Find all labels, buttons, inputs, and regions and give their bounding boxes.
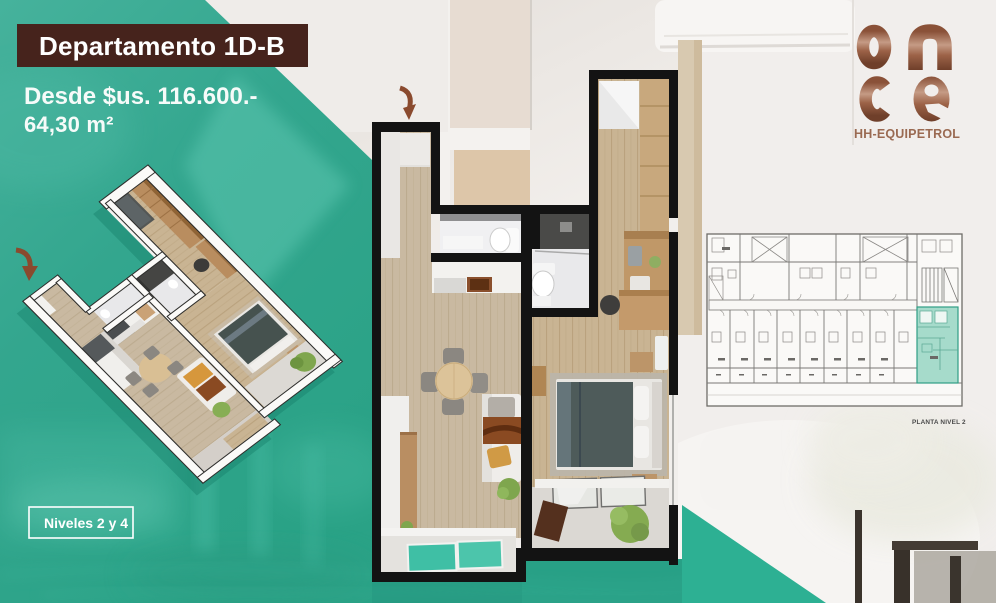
svg-text:Desde $us. 116.600.-: Desde $us. 116.600.- — [24, 83, 257, 110]
svg-text:PLANTA NIVEL 2: PLANTA NIVEL 2 — [912, 419, 966, 426]
svg-text:Niveles 2 y 4: Niveles 2 y 4 — [44, 515, 128, 531]
svg-text:HH-EQUIPETROL: HH-EQUIPETROL — [854, 127, 960, 141]
svg-text:64,30 m²: 64,30 m² — [24, 112, 114, 137]
svg-text:Departamento 1D-B: Departamento 1D-B — [39, 31, 285, 61]
